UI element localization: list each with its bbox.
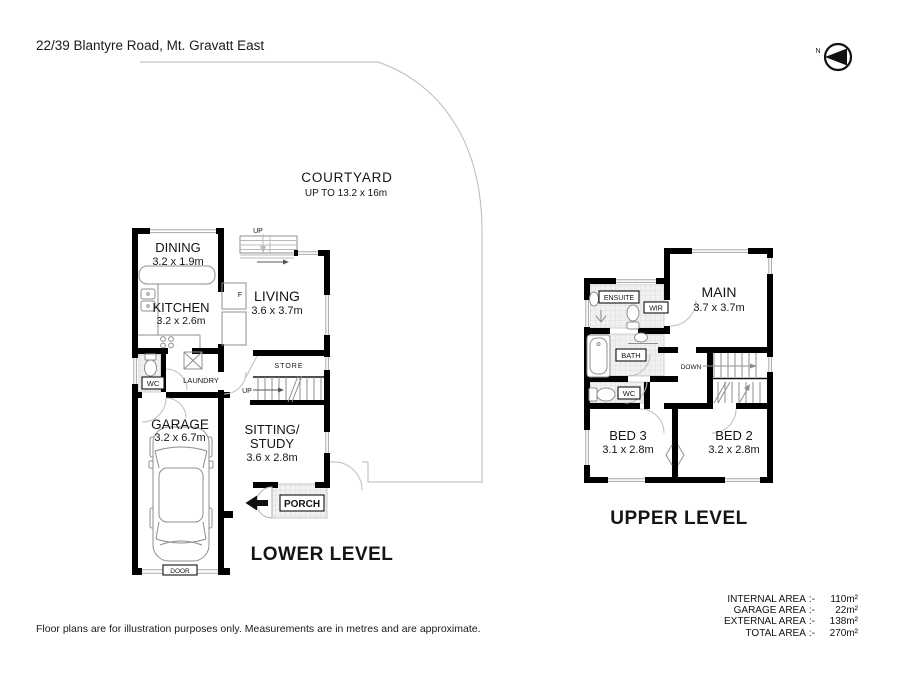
laundry-label: LAUNDRY: [183, 376, 219, 385]
area-value: 110m²: [818, 594, 858, 605]
upper-level-plan: DOWN: [584, 248, 773, 529]
area-label: EXTERNAL AREA: [724, 616, 806, 627]
fridge-space: [222, 283, 246, 309]
area-row-garage: GARAGE AREA :- 22m²: [724, 605, 858, 616]
disclaimer-text: Floor plans are for illustration purpose…: [36, 623, 481, 635]
garage-dims: 3.2 x 6.7m: [154, 432, 205, 444]
north-indicator: N: [815, 44, 851, 70]
store-label: STORE: [275, 363, 304, 370]
bath-label: BATH: [621, 351, 640, 360]
living-dims: 3.6 x 3.7m: [251, 305, 302, 317]
area-label: GARAGE AREA: [734, 605, 806, 616]
staircase-upper: DOWN: [681, 353, 767, 403]
entry-steps: UP: [240, 228, 297, 265]
area-value: 270m²: [818, 628, 858, 639]
wc-upper-label: WC: [623, 389, 636, 398]
down-label: DOWN: [681, 364, 702, 371]
sitting-dims: 3.6 x 2.8m: [246, 452, 297, 464]
courtyard-dims: UP TO 13.2 x 16m: [305, 188, 387, 199]
wc-upper-fixtures: [589, 388, 615, 401]
bed3-dims: 3.1 x 2.8m: [602, 444, 653, 456]
area-label: INTERNAL AREA: [727, 594, 806, 605]
wir-label: WIR: [649, 306, 663, 313]
up-stairs-label: UP: [242, 388, 252, 395]
main-label: MAIN: [702, 284, 737, 300]
wc-label: WC: [147, 379, 160, 388]
area-row-external: EXTERNAL AREA :- 138m²: [724, 616, 858, 627]
area-label: TOTAL AREA: [746, 628, 806, 639]
pantry: [222, 312, 246, 345]
bed2-dims: 3.2 x 2.8m: [708, 444, 759, 456]
floorplan-page: 22/39 Blantyre Road, Mt. Gravatt East N …: [0, 0, 900, 675]
north-label: N: [815, 48, 820, 55]
porch-label: PORCH: [284, 499, 320, 510]
kitchen-dims: 3.2 x 2.6m: [156, 315, 205, 327]
area-value: 22m²: [818, 605, 858, 616]
dining-dims: 3.2 x 1.9m: [152, 256, 203, 268]
garage-label: GARAGE: [151, 417, 209, 432]
lower-level-title: LOWER LEVEL: [251, 544, 394, 565]
front-entry: [246, 487, 273, 518]
floorplan-drawing: N COURTYARD UP TO 13.2 x 16m: [0, 0, 900, 675]
dining-label: DINING: [155, 240, 201, 255]
courtyard-label: COURTYARD: [301, 170, 392, 185]
kitchen-label: KITCHEN: [152, 300, 209, 315]
area-row-total: TOTAL AREA :- 270m²: [724, 628, 858, 639]
area-value: 138m²: [818, 616, 858, 627]
upper-level-title: UPPER LEVEL: [610, 508, 747, 529]
fridge-label: F: [238, 292, 242, 299]
area-row-internal: INTERNAL AREA :- 110m²: [724, 594, 858, 605]
area-summary: INTERNAL AREA :- 110m² GARAGE AREA :- 22…: [724, 594, 858, 639]
car-icon: [149, 427, 213, 561]
ensuite-label: ENSUITE: [604, 295, 635, 302]
lower-level-plan: UP: [132, 228, 393, 575]
garage-door-label: DOOR: [170, 568, 190, 575]
bed3-label: BED 3: [609, 428, 647, 443]
bed2-label: BED 2: [715, 428, 753, 443]
up-entry-label: UP: [253, 228, 263, 235]
staircase-lower: UP STORE: [242, 356, 324, 402]
main-dims: 3.7 x 3.7m: [693, 302, 744, 314]
sitting-label-2: STUDY: [250, 436, 294, 451]
sitting-label-1: SITTING/: [245, 422, 300, 437]
living-label: LIVING: [254, 288, 300, 304]
